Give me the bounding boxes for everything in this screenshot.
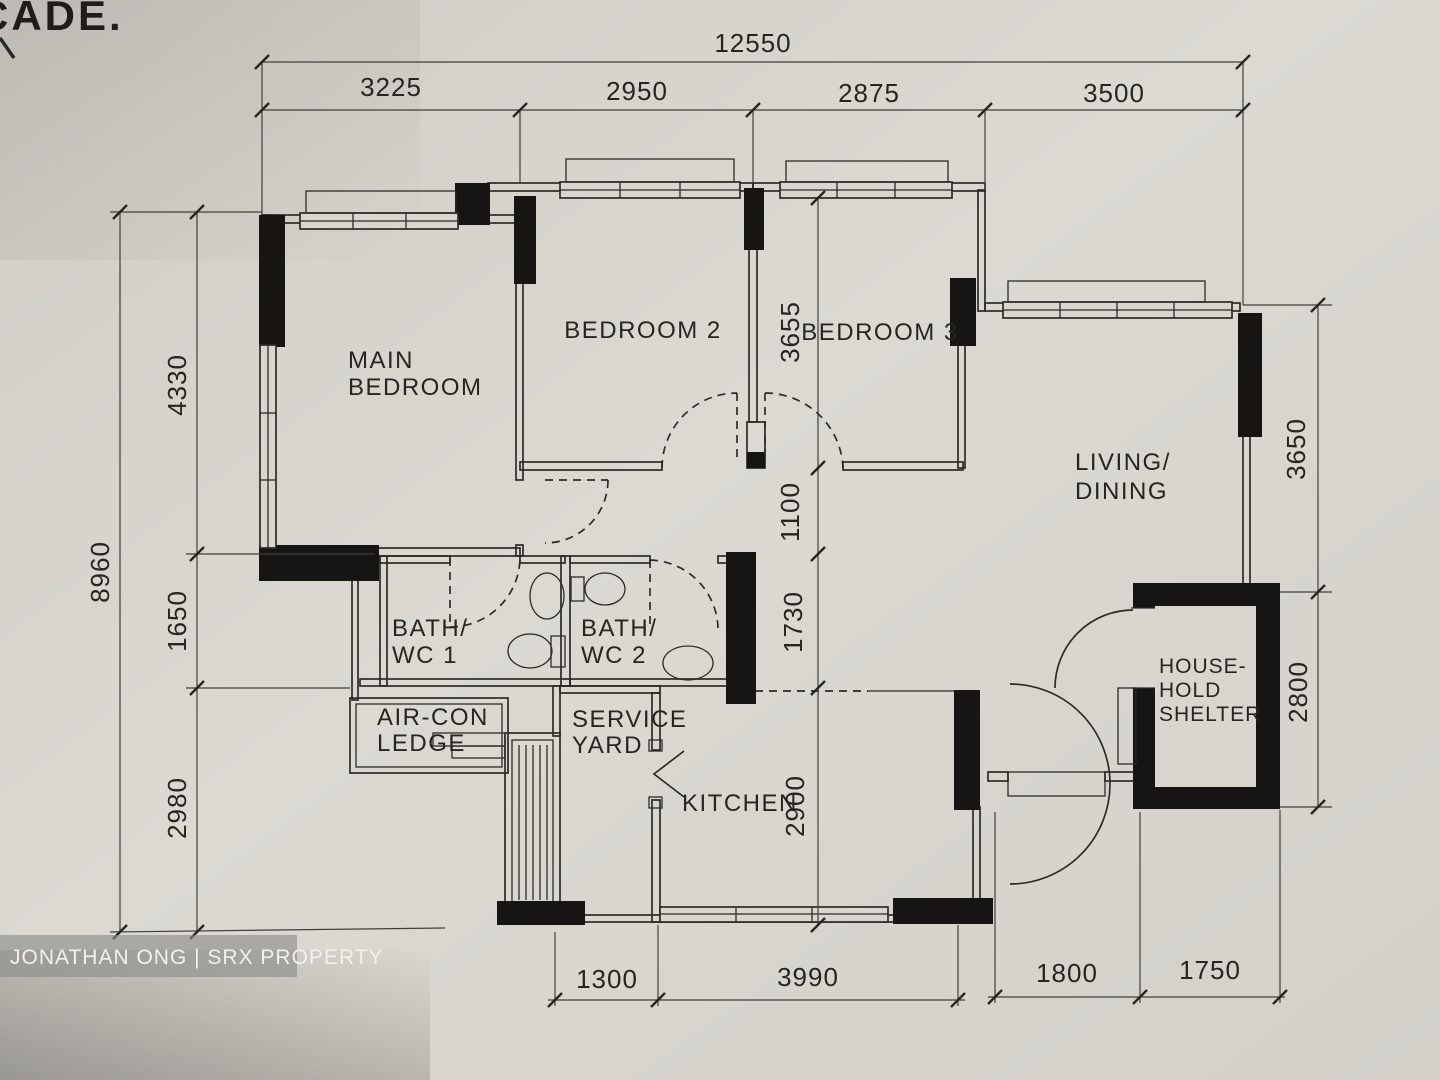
dim-right-2: 2800 — [1283, 661, 1313, 723]
dim-left-2: 1650 — [162, 590, 192, 652]
dim-left-3: 2980 — [162, 777, 192, 839]
room-bath1-line1: BATH/ — [392, 615, 468, 642]
dim-bottom-3: 1800 — [1036, 958, 1098, 988]
room-bedroom2: BEDROOM 2 — [564, 317, 722, 344]
dim-left-total: 8960 — [85, 541, 115, 603]
floor-plan-photo: 12550 3225 2950 2875 3500 8960 4330 1650… — [0, 0, 1440, 1080]
dim-bottom-2: 3990 — [777, 962, 839, 992]
dim-top-4: 3500 — [1083, 78, 1145, 108]
room-shelter-line3: SHELTER — [1159, 703, 1261, 726]
room-kitchen: KITCHEN — [682, 790, 798, 817]
room-shelter-line2: HOLD — [1159, 679, 1221, 702]
room-service-line2: YARD — [572, 732, 643, 759]
room-service-line1: SERVICE — [572, 706, 687, 733]
dim-top-3: 2875 — [838, 78, 900, 108]
room-bath1-line2: WC 1 — [392, 642, 458, 669]
dim-top-total: 12550 — [714, 28, 791, 58]
room-main-bedroom-line1: MAIN — [348, 347, 414, 374]
dim-top-1: 3225 — [360, 72, 422, 102]
dim-mid-3: 1730 — [778, 591, 808, 653]
dim-left-1: 4330 — [162, 354, 192, 416]
room-living-line1: LIVING/ — [1075, 449, 1171, 476]
dim-right-1: 3650 — [1281, 418, 1311, 480]
watermark-text: JONATHAN ONG | SRX PROPERTY — [10, 946, 384, 969]
room-bedroom3: BEDROOM 3 — [801, 319, 959, 346]
dim-top-2: 2950 — [606, 76, 668, 106]
room-shelter-line1: HOUSE- — [1159, 655, 1247, 678]
room-bath2-line1: BATH/ — [581, 615, 657, 642]
room-aircon-line2: LEDGE — [377, 730, 466, 757]
room-main-bedroom-line2: BEDROOM — [348, 374, 483, 401]
corner-cut-text: CADE. — [0, 0, 124, 39]
dim-bottom-1: 1300 — [576, 964, 638, 994]
dim-bottom-4: 1750 — [1179, 955, 1241, 985]
room-bath2-line2: WC 2 — [581, 642, 647, 669]
floor-plan-drawing: 12550 3225 2950 2875 3500 8960 4330 1650… — [0, 0, 1440, 1080]
room-aircon-line1: AIR-CON — [377, 704, 489, 731]
room-living-line2: DINING — [1075, 478, 1168, 505]
dim-mid-2: 1100 — [775, 482, 805, 542]
